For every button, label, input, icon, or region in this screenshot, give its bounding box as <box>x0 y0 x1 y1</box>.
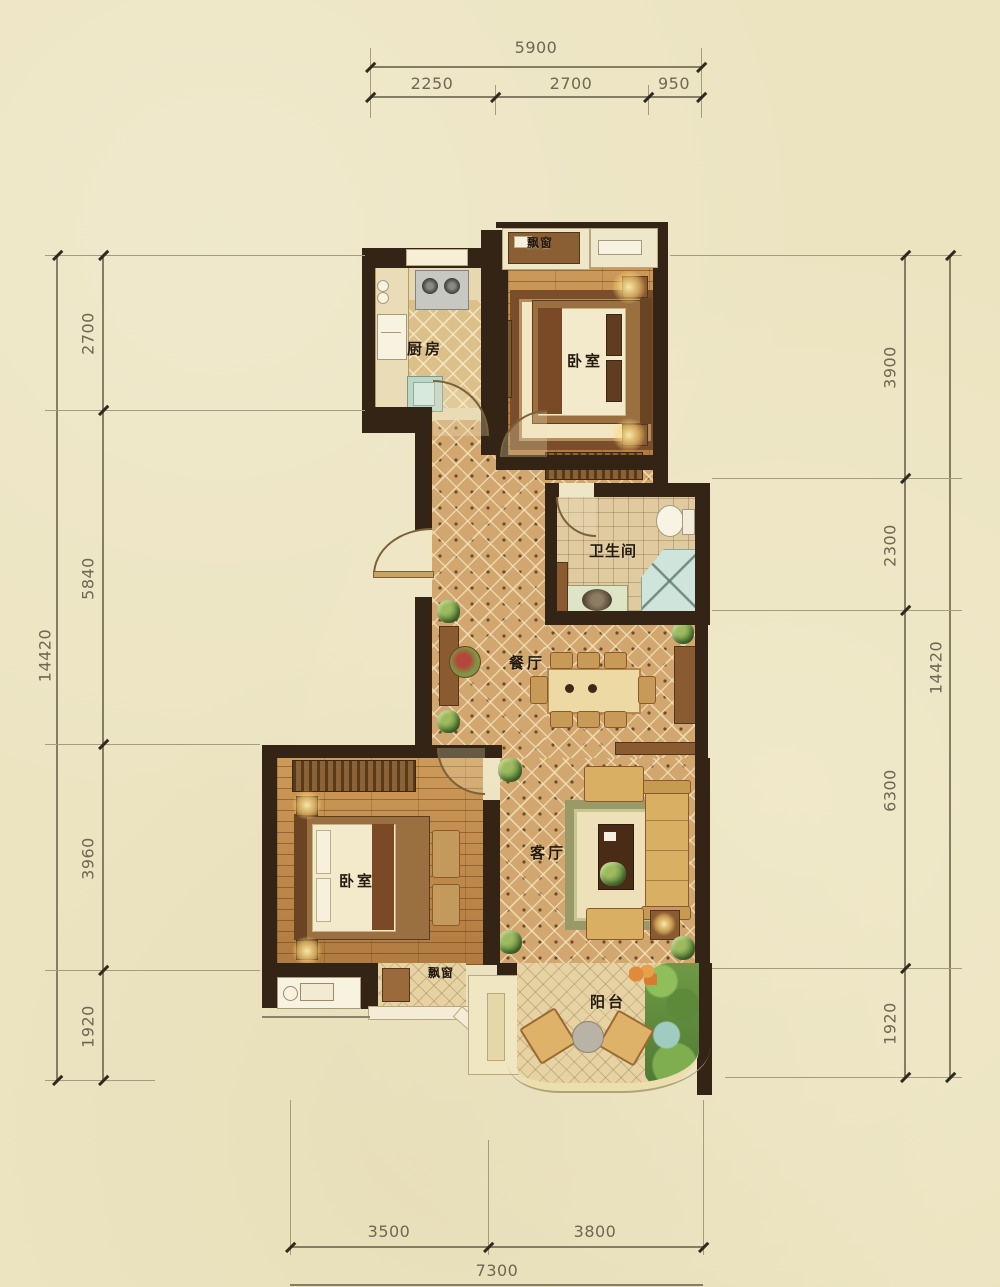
bay-bottom-desk <box>382 968 410 1002</box>
kitchen-jar <box>377 280 389 292</box>
dim-right-seg: 1920 <box>881 993 900 1055</box>
dim-line <box>370 96 701 98</box>
bedroom-top-label: 卧室 <box>555 350 615 371</box>
dining-chair <box>577 711 600 728</box>
extension-line <box>670 255 962 256</box>
entry-door-arc <box>373 528 432 575</box>
armchair <box>586 908 644 940</box>
dim-top-total: 5900 <box>505 38 567 57</box>
extension-line <box>703 1100 704 1255</box>
armchair <box>584 766 644 802</box>
extension-line <box>45 970 260 971</box>
bathroom-label: 卫生间 <box>573 540 653 561</box>
dim-line <box>949 255 951 1077</box>
wall <box>415 597 432 745</box>
hall-flower-table <box>449 646 481 678</box>
bedroom-bottom-pillow <box>316 830 331 874</box>
dining-chair <box>604 652 627 669</box>
dim-bottom-seg: 3500 <box>357 1222 421 1241</box>
dim-line <box>290 1246 703 1248</box>
counter-basin <box>283 986 298 1001</box>
wall <box>545 497 557 611</box>
wall <box>415 433 432 530</box>
dining-chair <box>577 652 600 669</box>
bathroom-sink <box>582 589 612 611</box>
wall <box>358 963 378 1009</box>
wall <box>496 455 653 470</box>
bedside-lamp-glow <box>292 790 322 820</box>
balcony-side-door <box>487 993 505 1061</box>
wall <box>545 483 559 497</box>
wall <box>362 407 432 433</box>
toilet <box>656 505 684 537</box>
corner-lamp-glow <box>652 912 676 936</box>
dim-left-total: 14420 <box>36 625 55 687</box>
dim-line <box>102 255 104 1080</box>
outer-edge-line <box>262 1016 370 1018</box>
bay-top-label: 飘窗 <box>510 234 570 251</box>
dim-line <box>56 255 58 1080</box>
bedroom-bottom-chair <box>432 884 460 926</box>
kitchen-label: 厨房 <box>395 338 455 359</box>
dim-line <box>290 1284 703 1286</box>
bedroom-bottom-chair <box>432 830 460 878</box>
bedside-lamp-glow <box>612 418 646 452</box>
extension-line <box>712 478 962 479</box>
potted-plant <box>498 758 522 782</box>
extension-line <box>45 255 365 256</box>
wall <box>362 248 375 420</box>
extension-line <box>725 1077 962 1078</box>
extension-line <box>45 744 260 745</box>
dim-bottom-total: 7300 <box>465 1261 529 1280</box>
extension-line <box>45 410 365 411</box>
stove-burner <box>444 278 460 294</box>
dining-label: 餐厅 <box>497 652 557 673</box>
dining-armchair <box>638 676 656 704</box>
bedside-lamp-glow <box>612 270 646 304</box>
window-sill-box <box>598 240 642 255</box>
extension-line <box>495 85 496 115</box>
wall <box>695 758 710 968</box>
dining-armchair <box>530 676 548 704</box>
bay-bottom-label: 飘窗 <box>411 964 471 981</box>
sofa-armrest <box>641 780 691 794</box>
wall <box>594 483 710 497</box>
dining-chair <box>604 711 627 728</box>
bedroom-bottom-wardrobe <box>292 760 416 792</box>
wall <box>695 483 710 625</box>
stove-burner <box>422 278 438 294</box>
potted-plant <box>437 710 460 733</box>
kitchen-sink <box>413 382 435 406</box>
bedroom-bottom-label: 卧室 <box>327 870 387 891</box>
extension-line <box>370 48 371 118</box>
kitchen-window <box>406 249 468 266</box>
entry-door-leaf <box>373 571 434 578</box>
dim-left-seg: 2700 <box>79 303 98 365</box>
dining-chair <box>550 711 573 728</box>
dim-right-seg: 3900 <box>881 337 900 399</box>
dining-plate <box>588 684 597 693</box>
table-bouquet <box>600 862 626 886</box>
wall <box>695 625 708 758</box>
potted-plant <box>437 600 460 623</box>
extension-line <box>488 1140 489 1255</box>
dim-right-total: 14420 <box>927 637 946 699</box>
potted-plant <box>672 622 694 644</box>
dim-line <box>904 255 906 1077</box>
dim-right-seg: 6300 <box>881 760 900 822</box>
potted-plant <box>498 930 522 954</box>
wall <box>483 800 500 965</box>
counter-box <box>300 983 334 1001</box>
sideboard <box>674 646 697 724</box>
dim-left-seg: 3960 <box>79 828 98 890</box>
potted-plant <box>671 936 695 960</box>
extension-line <box>290 1100 291 1255</box>
balcony-outer-rim <box>508 975 710 1093</box>
sofa <box>645 788 689 912</box>
living-label: 客厅 <box>518 842 578 863</box>
bedroom-top-headboard <box>640 298 652 424</box>
bedside-lamp-glow <box>292 936 322 966</box>
dim-top-seg: 2700 <box>539 74 603 93</box>
coffee-table-paper <box>604 832 616 841</box>
dim-top-seg: 2250 <box>400 74 464 93</box>
dim-left-seg: 5840 <box>79 548 98 610</box>
kitchen-jar <box>377 292 389 304</box>
dim-top-seg: 950 <box>642 74 706 93</box>
floorplan-canvas: 阳台 厨房 卧室 卫生间 餐厅 客厅 卧室 飘窗 飘窗 5900 2250 27… <box>0 0 1000 1287</box>
extension-line <box>712 610 962 611</box>
dim-bottom-seg: 3800 <box>563 1222 627 1241</box>
dim-right-seg: 2300 <box>881 515 900 577</box>
fridge-handle <box>381 332 401 333</box>
console-bench <box>615 742 697 755</box>
extension-line <box>712 968 962 969</box>
dim-line <box>370 66 701 68</box>
dim-left-seg: 1920 <box>79 996 98 1058</box>
dining-plate <box>565 684 574 693</box>
wall <box>545 611 710 625</box>
bedroom-bottom-headboard <box>294 814 307 940</box>
toilet-tank <box>682 509 695 535</box>
